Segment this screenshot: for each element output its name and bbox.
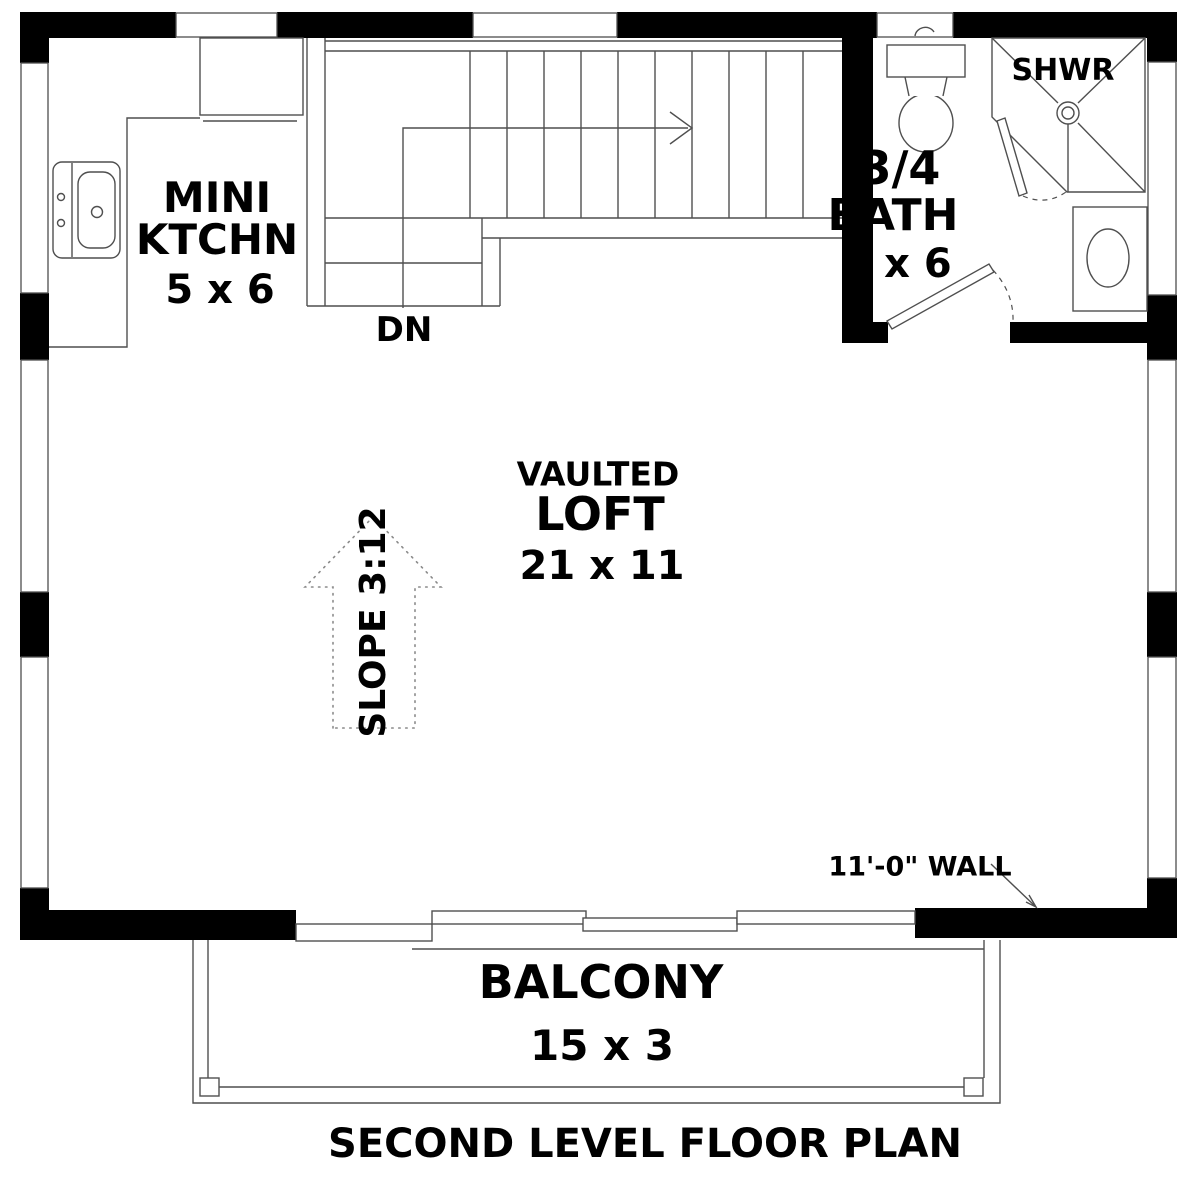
window-left-upper [21, 63, 48, 293]
stairs-dn-label: DN [376, 313, 433, 347]
bath-label-name2: BATH [827, 194, 958, 238]
stair-direction-arrow [403, 112, 692, 308]
shower-label: SHWR [1012, 56, 1115, 86]
window-right-middle [1148, 360, 1176, 592]
bath-label-name1: 3/4 [860, 145, 941, 191]
roof-slope-label: SLOPE 3:12 [356, 506, 392, 737]
kitchen-label-dims: 5 x 6 [165, 270, 274, 310]
balcony-post-right [964, 1078, 983, 1096]
kitchen-label-name1: MINI [163, 177, 271, 219]
wall-height-note: 11'-0" WALL [828, 854, 1011, 881]
staircase [307, 38, 842, 308]
window-right-upper [1148, 62, 1176, 295]
balcony-label-name: BALCONY [479, 959, 724, 1005]
shower-door-swing [1023, 192, 1066, 200]
sliding-door-panel-outer [432, 911, 586, 924]
sliding-door-panel-inner [583, 918, 737, 931]
plan-title: SECOND LEVEL FLOOR PLAN [328, 1124, 962, 1164]
bath-label-dims: 6 x 6 [842, 244, 951, 284]
window-top-center [473, 13, 617, 37]
window-left-middle [21, 360, 48, 592]
kitchen-sink [53, 162, 120, 258]
balcony-label-dims: 15 x 3 [530, 1025, 674, 1067]
toilet-tank [887, 45, 965, 77]
loft-label-name2: LOFT [535, 491, 665, 537]
windows [21, 13, 1176, 888]
loft-label-name1: VAULTED [517, 458, 680, 491]
balcony-post-left [200, 1078, 219, 1096]
sliding-door [296, 911, 915, 941]
window-left-lower [21, 657, 48, 888]
bath-door-swing [993, 270, 1013, 322]
kitchen-label-name2: KTCHN [136, 219, 298, 261]
stair-treads [470, 51, 803, 218]
loft-label-dims: 21 x 11 [520, 546, 685, 586]
bath-vanity [1073, 207, 1147, 311]
kitchen-cabinet [200, 38, 303, 115]
window-right-lower [1148, 657, 1176, 878]
toilet [887, 45, 965, 152]
window-top-left [176, 13, 277, 37]
floor-plan: MINI KTCHN 5 x 6 DN 3/4 BATH 6 x 6 SHWR … [0, 0, 1200, 1177]
